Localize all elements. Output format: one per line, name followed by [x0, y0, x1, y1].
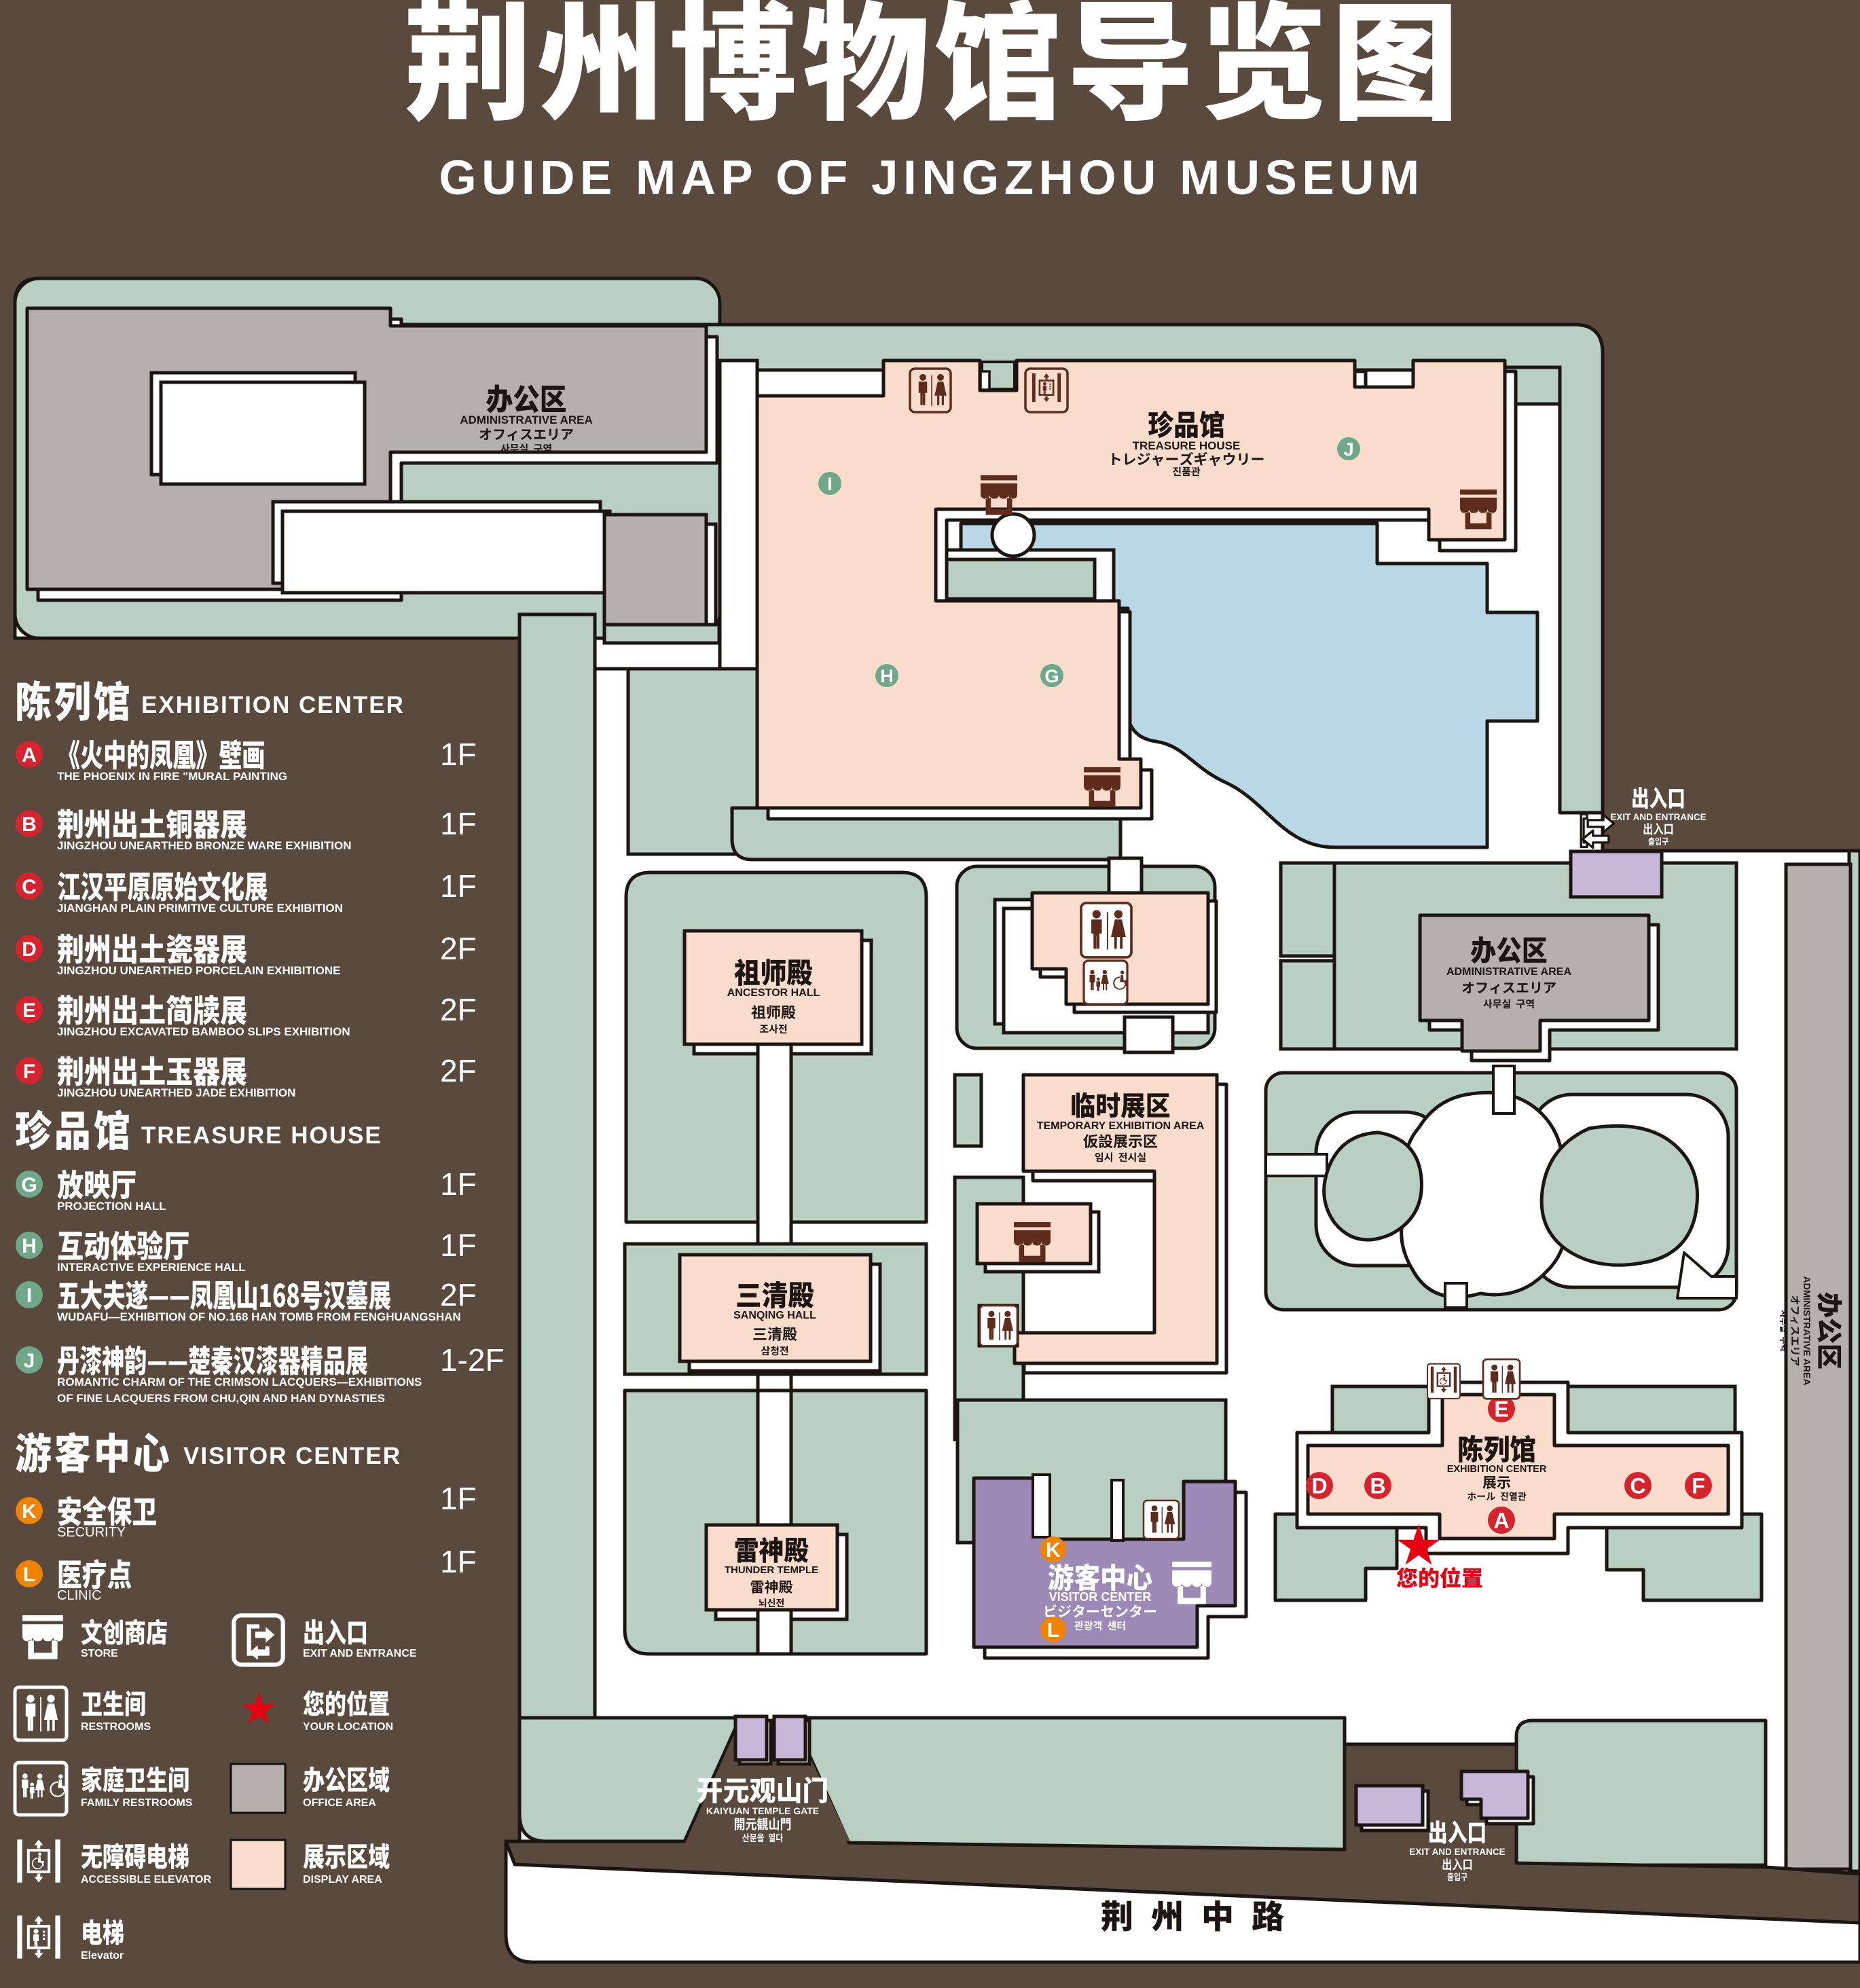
- svg-text:TREASURE HOUSE: TREASURE HOUSE: [141, 1122, 382, 1149]
- svg-text:1F: 1F: [440, 1481, 477, 1516]
- svg-text:RESTROOMS: RESTROOMS: [81, 1721, 151, 1733]
- svg-text:FAMILY RESTROOMS: FAMILY RESTROOMS: [81, 1797, 193, 1809]
- svg-text:JINGZHOU EXCAVATED BAMBOO SLIP: JINGZHOU EXCAVATED BAMBOO SLIPS EXHIBITI…: [57, 1025, 350, 1038]
- svg-text:ROMANTIC CHARM OF THE CRIMSON: ROMANTIC CHARM OF THE CRIMSON LACQUERS—E…: [57, 1376, 422, 1388]
- svg-text:VISITOR CENTER: VISITOR CENTER: [1049, 1590, 1152, 1604]
- svg-text:G: G: [21, 1174, 37, 1196]
- svg-text:KAIYUAN TEMPLE GATE: KAIYUAN TEMPLE GATE: [706, 1805, 819, 1816]
- svg-text:JINGZHOU UNEARTHED JADE EXHIBI: JINGZHOU UNEARTHED JADE EXHIBITION: [57, 1086, 295, 1099]
- svg-text:VISITOR CENTER: VISITOR CENTER: [183, 1443, 401, 1469]
- svg-text:1F: 1F: [440, 737, 477, 772]
- svg-text:SECURITY: SECURITY: [57, 1525, 126, 1540]
- svg-text:K: K: [22, 1501, 37, 1523]
- svg-text:INTERACTIVE EXPERIENCE HALL: INTERACTIVE EXPERIENCE HALL: [57, 1261, 246, 1274]
- svg-text:ADMINISTRATIVE AREA: ADMINISTRATIVE AREA: [1446, 966, 1571, 978]
- svg-text:L: L: [23, 1564, 35, 1586]
- svg-text:STORE: STORE: [81, 1648, 118, 1659]
- svg-text:2F: 2F: [440, 1277, 477, 1312]
- svg-text:L: L: [1047, 1619, 1060, 1642]
- svg-text:2F: 2F: [440, 992, 477, 1027]
- svg-text:1-2F: 1-2F: [440, 1342, 505, 1378]
- svg-text:OF FINE LACQUERS FROM CHU,QIN: OF FINE LACQUERS FROM CHU,QIN AND HAN DY…: [57, 1392, 385, 1405]
- svg-text:JINGZHOU UNEARTHED PORCELAIN E: JINGZHOU UNEARTHED PORCELAIN EXHIBITIONE: [57, 964, 340, 977]
- svg-text:EXIT AND ENTRANCE: EXIT AND ENTRANCE: [1610, 812, 1706, 822]
- svg-text:2F: 2F: [440, 1053, 477, 1088]
- svg-text:2F: 2F: [440, 931, 477, 966]
- svg-text:D: D: [1311, 1474, 1327, 1498]
- svg-text:WUDAFU—EXHIBITION OF NO.168 HA: WUDAFU—EXHIBITION OF NO.168 HAN TOMB FRO…: [57, 1310, 461, 1323]
- svg-text:I: I: [827, 473, 833, 494]
- svg-text:JIANGHAN PLAIN PRIMITIVE CULTU: JIANGHAN PLAIN PRIMITIVE CULTURE EXHIBIT…: [57, 902, 343, 915]
- svg-text:DISPLAY AREA: DISPLAY AREA: [303, 1874, 382, 1885]
- svg-text:GUIDE MAP OF JINGZHOU MUSEUM: GUIDE MAP OF JINGZHOU MUSEUM: [439, 151, 1424, 205]
- svg-text:ADMINISTRATIVE AREA: ADMINISTRATIVE AREA: [1802, 1276, 1812, 1386]
- svg-text:C: C: [1630, 1474, 1645, 1498]
- svg-text:SANQING HALL: SANQING HALL: [733, 1310, 816, 1321]
- svg-text:ADMINISTRATIVE AREA: ADMINISTRATIVE AREA: [460, 413, 593, 426]
- svg-text:J: J: [1343, 439, 1353, 460]
- svg-text:ANCESTOR HALL: ANCESTOR HALL: [727, 987, 820, 999]
- svg-text:1F: 1F: [440, 868, 477, 904]
- svg-text:1F: 1F: [440, 1544, 477, 1579]
- svg-text:H: H: [880, 665, 894, 686]
- svg-text:PROJECTION HALL: PROJECTION HALL: [57, 1200, 166, 1213]
- svg-text:TREASURE HOUSE: TREASURE HOUSE: [1133, 439, 1241, 452]
- svg-text:I: I: [26, 1285, 32, 1307]
- svg-text:ACCESSIBLE ELEVATOR: ACCESSIBLE ELEVATOR: [81, 1874, 211, 1885]
- svg-text:1F: 1F: [440, 1228, 477, 1263]
- svg-text:Elevator: Elevator: [81, 1950, 124, 1962]
- svg-text:CLINIC: CLINIC: [57, 1588, 102, 1603]
- svg-text:OFFICE AREA: OFFICE AREA: [303, 1797, 376, 1809]
- svg-text:G: G: [1044, 665, 1059, 686]
- svg-text:1F: 1F: [440, 1166, 477, 1202]
- svg-text:J: J: [24, 1350, 35, 1372]
- svg-text:K: K: [1046, 1539, 1061, 1562]
- svg-text:EXIT AND ENTRANCE: EXIT AND ENTRANCE: [1409, 1847, 1505, 1857]
- svg-text:TEMPORARY EXHIBITION AREA: TEMPORARY EXHIBITION AREA: [1037, 1120, 1205, 1132]
- svg-text:B: B: [22, 813, 37, 836]
- svg-text:D: D: [22, 938, 37, 961]
- svg-text:JINGZHOU UNEARTHED BRONZE WARE: JINGZHOU UNEARTHED BRONZE WARE EXHIBITIO…: [57, 839, 352, 852]
- svg-text:E: E: [1494, 1397, 1508, 1422]
- svg-text:EXIT AND ENTRANCE: EXIT AND ENTRANCE: [303, 1648, 417, 1659]
- svg-text:A: A: [1493, 1509, 1509, 1533]
- svg-text:EXHIBITION CENTER: EXHIBITION CENTER: [1447, 1464, 1547, 1475]
- svg-text:EXHIBITION CENTER: EXHIBITION CENTER: [141, 692, 405, 718]
- svg-text:THUNDER TEMPLE: THUNDER TEMPLE: [725, 1564, 818, 1576]
- svg-text:A: A: [22, 744, 37, 767]
- svg-text:YOUR LOCATION: YOUR LOCATION: [303, 1721, 393, 1733]
- svg-text:B: B: [1370, 1474, 1385, 1498]
- svg-text:1F: 1F: [440, 806, 477, 841]
- svg-text:C: C: [22, 876, 37, 898]
- svg-text:F: F: [1692, 1474, 1705, 1498]
- svg-text:F: F: [23, 1061, 35, 1083]
- svg-text:E: E: [22, 999, 36, 1022]
- svg-text:THE PHOENIX IN FIRE "MURAL PAI: THE PHOENIX IN FIRE "MURAL PAINTING: [57, 770, 287, 783]
- svg-text:H: H: [22, 1235, 37, 1257]
